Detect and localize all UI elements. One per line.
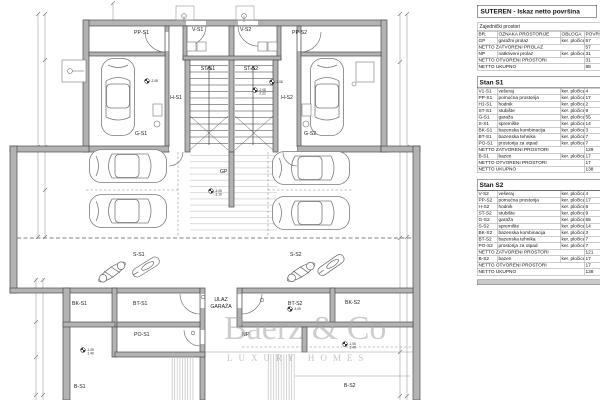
entry-canopy [176, 6, 254, 22]
table-cell: ker. pločice [560, 121, 584, 128]
room-label-np: NP [242, 332, 250, 338]
table-cell: ker. pločice [560, 38, 584, 45]
table-cell: ker. pločice [560, 88, 584, 95]
table-cell: ker. pločice [560, 210, 584, 217]
room-label-g-s2: G-S2 [304, 131, 316, 137]
table-cell: OBLOGA [560, 31, 584, 38]
room-label-st-s2: ST-S2 [244, 66, 259, 72]
room-label-gp: GP [220, 169, 228, 175]
section-heading-stan-s1: Stan S1 [477, 77, 600, 89]
room-label-h-s2: H-S2 [281, 95, 293, 101]
table-cell: ker. pločice [560, 140, 584, 147]
room-label-g-s1: G-S1 [135, 131, 147, 137]
table-cell: ker. pločice [560, 153, 584, 160]
table-cell: ker. pločice [560, 217, 584, 224]
table-cell: ker. pločice [560, 114, 584, 121]
level-marker: -2.08 [145, 79, 158, 84]
level-marker: -1.05-1.40 [81, 348, 94, 356]
steps-hatch-right [267, 354, 295, 400]
table-cell: NETTO UKUPNO [477, 64, 584, 71]
level-value: -3.05 [294, 307, 301, 311]
table-cell: ker. pločice [560, 230, 584, 237]
area-table-column: SUTEREN - Iskaz netto površina Zajedničk… [477, 5, 600, 285]
room-label-pp-s2: PP-S2 [292, 30, 307, 36]
table-cell: 138 [584, 166, 600, 173]
table-cell: ker. pločice [560, 51, 584, 58]
table-cell: NETTO UKUPNO [477, 166, 584, 173]
table-cell: ker. pločice [560, 256, 584, 263]
room-label-st-s1: ST-S1 [201, 66, 216, 72]
table-cell: ker. pločice [560, 243, 584, 250]
room-label-h-s1: H-S1 [170, 95, 182, 101]
table-cell: ker. pločice [560, 197, 584, 204]
room-label-b-s1: B-S1 [74, 384, 86, 390]
level-value: -1.40 [349, 345, 356, 349]
area-table-stan-s1: V1-S1vešerajker. pločice4PP-S1pomoćna pr… [477, 88, 600, 173]
table-cell: 138 [584, 269, 600, 276]
level-value: -2.22 [259, 91, 266, 95]
staircase-st-s1 [190, 62, 228, 146]
level-marker: -3.05 [288, 307, 301, 312]
next-section-bar [477, 280, 600, 286]
table-cell: ker. pločice [560, 101, 584, 108]
room-label-v-s2: V-S2 [240, 27, 251, 33]
level-marker: -1.05-1.40 [343, 342, 356, 350]
floorplan-drawing: PP-S1V-S1V-S2PP-S2ST-S1ST-S2H-S1H-S2G-S1… [0, 0, 440, 400]
table-row: NETTO UKUPNO138 [477, 269, 600, 276]
table-cell: POVRŠINA [584, 31, 600, 38]
table-cell: ker. pločice [560, 108, 584, 115]
room-label-bt-s1: BT-S1 [133, 301, 148, 307]
room-label-bk-s1: BK-S1 [72, 301, 87, 307]
room-label-garaža: GARAŽA [210, 302, 232, 310]
table-cell: ker. pločice [560, 204, 584, 211]
staircase-st-s2 [235, 62, 273, 146]
floorplan-page: { "table": { "title": "SUTEREN - Iskaz n… [0, 0, 600, 400]
table-row: NETTO UKUPNO138 [477, 166, 600, 173]
area-table-common: BR.OZNAKA PROSTORIJEOBLOGAPOVRŠINAGPgara… [477, 31, 600, 71]
table-title: SUTEREN - Iskaz netto površina [477, 5, 597, 18]
table-sections: Zajednički prostoriBR.OZNAKA PROSTORIJEO… [477, 23, 600, 276]
room-label-v-s1: V-S1 [192, 27, 203, 33]
table-cell: 88 [584, 64, 600, 71]
table-cell: ker. pločice [560, 127, 584, 134]
table-cell: ker. pločice [560, 191, 584, 198]
table-cell: ker. pločice [560, 223, 584, 230]
room-label-s-s1: S-S1 [133, 252, 145, 258]
floorplan-svg: PP-S1V-S1V-S2PP-S2ST-S1ST-S2H-S1H-S2G-S1… [0, 0, 440, 400]
level-value: -2.08 [276, 80, 283, 84]
steps-hatch-left [170, 356, 194, 400]
area-table-stan-s2: V-S2vešerajker. pločice4PP-S2pomoćna pro… [477, 191, 600, 276]
section-heading-common: Zajednički prostori [477, 23, 600, 32]
level-value: -2.08 [151, 79, 158, 83]
room-label-b-s2: B-S2 [344, 383, 356, 389]
level-value: -3.19 [215, 192, 222, 196]
table-row: NETTO UKUPNO88 [477, 64, 600, 71]
room-label-ulaz: ULAZ [214, 297, 227, 303]
table-cell: ker. pločice [560, 134, 584, 141]
level-marker: -2.08 [270, 80, 283, 85]
room-label-po-s1: PO-S1 [134, 332, 150, 338]
room-label-s-s2: S-S2 [290, 252, 302, 258]
table-cell: ker. pločice [560, 236, 584, 243]
section-heading-stan-s2: Stan S2 [477, 179, 600, 191]
table-cell: NETTO UKUPNO [477, 269, 584, 276]
room-label-bk-s2: BK-S2 [345, 300, 360, 306]
room-label-pp-s1: PP-S1 [134, 30, 149, 36]
table-cell: ker. pločice [560, 95, 584, 102]
level-value: -1.40 [87, 351, 94, 355]
